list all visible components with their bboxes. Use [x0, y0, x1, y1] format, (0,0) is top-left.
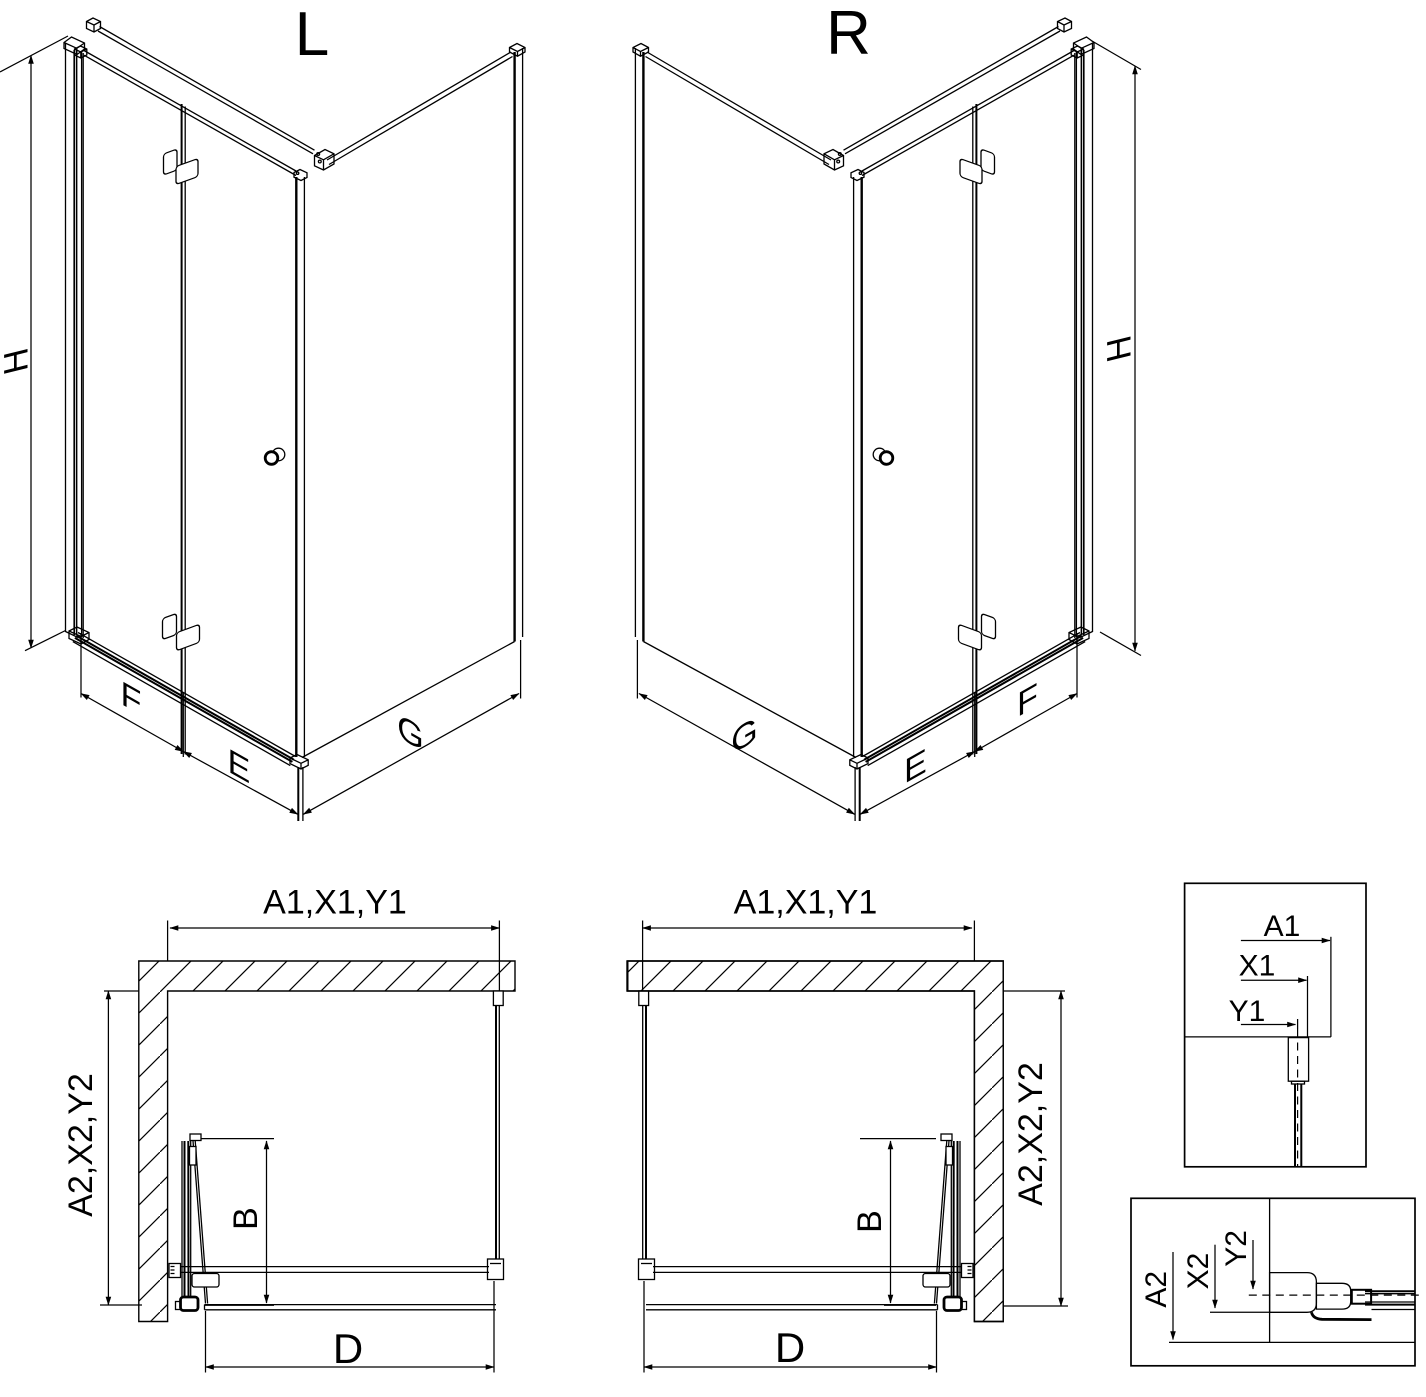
svg-text:A2: A2 [1140, 1271, 1173, 1308]
svg-text:D: D [775, 1324, 805, 1371]
svg-text:A2,X2,Y2: A2,X2,Y2 [1012, 1062, 1050, 1206]
svg-text:A1,X1,Y1: A1,X1,Y1 [734, 884, 878, 922]
svg-text:D: D [333, 1325, 363, 1372]
svg-text:B: B [851, 1210, 889, 1233]
svg-text:B: B [227, 1207, 265, 1230]
svg-text:R: R [826, 0, 871, 68]
svg-text:Y1: Y1 [1229, 995, 1266, 1028]
svg-text:Y2: Y2 [1220, 1230, 1253, 1267]
svg-text:A1,X1,Y1: A1,X1,Y1 [263, 884, 407, 922]
svg-text:L: L [295, 0, 329, 69]
svg-text:A1: A1 [1264, 910, 1301, 943]
svg-text:X1: X1 [1239, 950, 1276, 983]
svg-text:X2: X2 [1182, 1253, 1215, 1290]
svg-text:A2,X2,Y2: A2,X2,Y2 [62, 1073, 100, 1217]
